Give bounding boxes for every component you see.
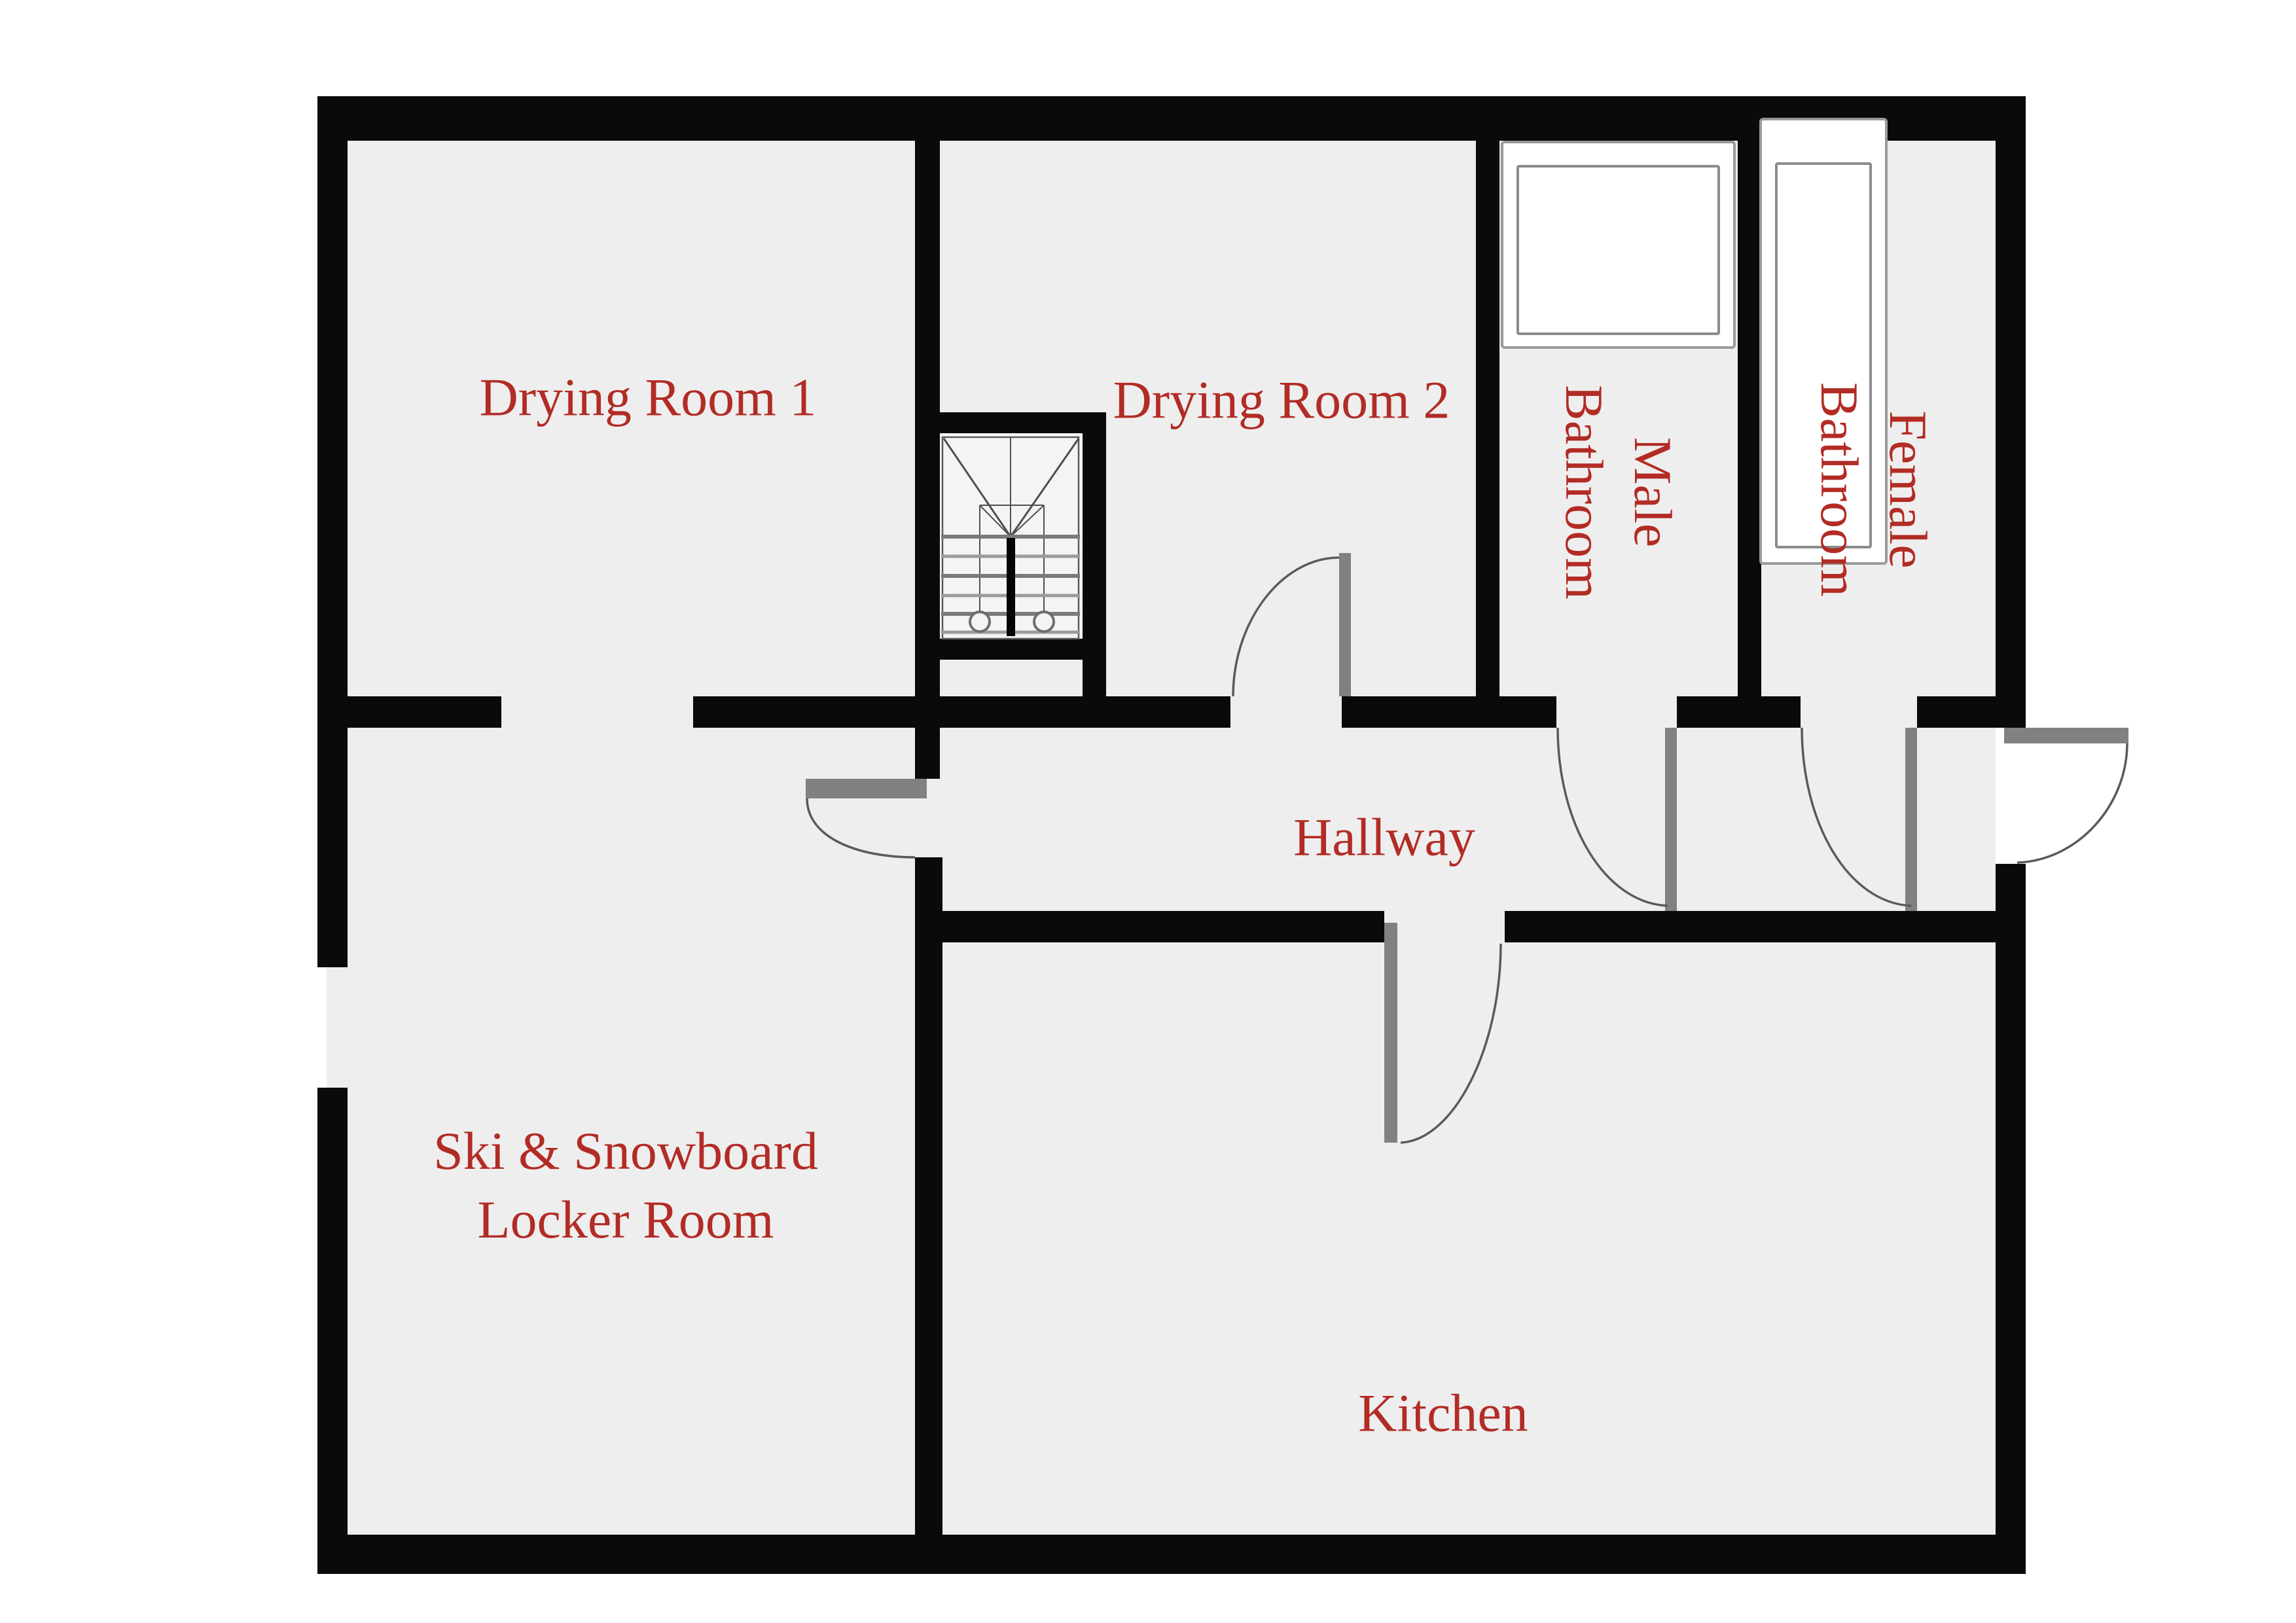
male-bathroom-door-jamb: [1665, 728, 1677, 911]
exterior-exit-door-leaf: [2004, 728, 2128, 743]
locker-room-hallway-door-leaf: [806, 779, 927, 798]
male-bathroom-label: Male Bathroom: [1549, 374, 1687, 610]
exterior-exit-door-arc: [2017, 743, 2127, 863]
kitchen-label: Kitchen: [1280, 1380, 1607, 1448]
hallway-top-wall-d: [1677, 696, 1801, 728]
kitchen-top-wall-a: [915, 911, 1384, 942]
kitchen-door-jamb: [1384, 923, 1397, 1143]
drying-room-2-label: Drying Room 2: [1052, 366, 1511, 435]
locker-room-label: Ski & Snowboard Locker Room: [423, 1117, 829, 1255]
hallway-top-wall-a: [317, 696, 501, 728]
female-bathroom-label: Female Bathroom: [1804, 372, 1942, 607]
drying-room-1-label: Drying Room 1: [419, 364, 877, 433]
floor-plan: Drying Room 1 Drying Room 2 Male Bathroo…: [0, 0, 2296, 1623]
staircase-floor: [940, 433, 1083, 639]
exterior-wall-bottom: [317, 1535, 2026, 1574]
kitchen-top-wall-b: [1505, 911, 2026, 942]
exterior-wall-left-upper: [317, 96, 348, 967]
exterior-wall-left-lower: [317, 1088, 348, 1574]
divider-locker-kitchen: [915, 857, 942, 1535]
left-exterior-wall-opening: [327, 967, 348, 1088]
hallway-top-wall-c: [1342, 696, 1556, 728]
hallway-top-wall-b: [693, 696, 1230, 728]
drying-room-2-door-jamb: [1339, 553, 1351, 696]
staircase-wall-bottom: [915, 639, 1106, 660]
hallway-top-wall-e: [1917, 696, 2026, 728]
exterior-wall-right-lower: [1996, 864, 2026, 1574]
divider-male-female-bathroom: [1738, 141, 1761, 696]
hallway-label: Hallway: [1221, 804, 1548, 872]
exterior-wall-right-upper: [1996, 96, 2026, 728]
female-bathroom-door-jamb: [1905, 728, 1917, 911]
male-bathroom-fixture-inner: [1516, 165, 1720, 335]
divider-locker-hallway-stub: [915, 728, 940, 779]
